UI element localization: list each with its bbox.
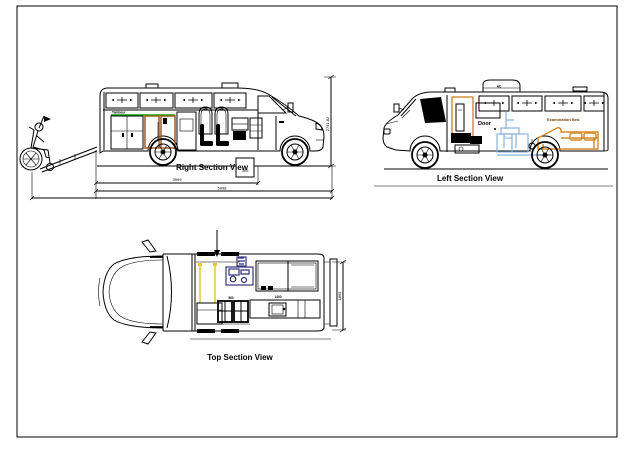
mirror-plan-top [142, 240, 156, 252]
examination-bed: Examination Bed [538, 117, 598, 149]
top-view-title: Top Section View [207, 353, 273, 362]
right-section-view: Tambour [20, 75, 336, 200]
roof-vent [222, 83, 238, 88]
equipment-block [226, 257, 253, 285]
tambour-doors [145, 116, 175, 148]
counter-plan: 1400 [250, 295, 320, 318]
bed-plan [256, 261, 318, 291]
bulkhead-wall [192, 254, 195, 331]
cab-right [258, 96, 324, 150]
cabinet-label: Tambour [112, 111, 126, 115]
roof-vent [573, 87, 587, 91]
dim-height-right: 2741.82 [325, 116, 330, 131]
dimensions-top-view: 1865 [332, 260, 346, 332]
side-mirror-icon [394, 104, 399, 112]
cab-window [420, 97, 446, 123]
roof-vent [445, 88, 455, 92]
dim-outer: 5998 [218, 186, 228, 191]
door-rail [221, 329, 239, 333]
windshield-plan [167, 256, 172, 328]
mirror-plan-bottom [142, 332, 156, 344]
door-rail [197, 252, 215, 256]
front-wheel [282, 139, 308, 165]
top-section-view: 960 1400 1865 Top Section View [99, 230, 347, 362]
cad-canvas: Tambour [0, 0, 633, 445]
attendant-chair: Chair [501, 112, 519, 148]
ac-roof-unit: AC [483, 80, 520, 92]
headlight-icon [384, 129, 390, 134]
wheelchair-ramp [20, 116, 97, 172]
door-rail [197, 329, 215, 333]
rear-wheel [150, 139, 176, 165]
seat-dim: 960 [228, 296, 234, 300]
door-handle [279, 121, 284, 123]
headlight-icon [316, 123, 322, 130]
wheelchair-user-icon [20, 116, 54, 171]
sheet-border [17, 6, 617, 437]
left-section-view: AC [374, 80, 613, 186]
drawing-sheet: Tambour [0, 0, 633, 445]
left-view-title: Left Section View [437, 174, 504, 183]
hood-plan [99, 256, 172, 328]
rear-door-plan [330, 259, 337, 326]
front-wheel [412, 142, 438, 168]
dim-height-top: 1865 [337, 291, 342, 301]
ac-label: AC [497, 85, 502, 89]
counter-dim: 1400 [274, 295, 281, 299]
faucet-icon [283, 308, 286, 311]
window-band [106, 93, 246, 108]
dimensions-right-view: 2741.82 3999 5998 300 [30, 75, 336, 200]
door-rail [221, 252, 239, 256]
bed-label: Examination Bed [547, 117, 580, 122]
right-view-title: Right Section View [176, 163, 249, 172]
dim-inner: 3999 [173, 177, 183, 182]
door-label: Door [478, 121, 492, 127]
roof-vent [146, 84, 158, 88]
